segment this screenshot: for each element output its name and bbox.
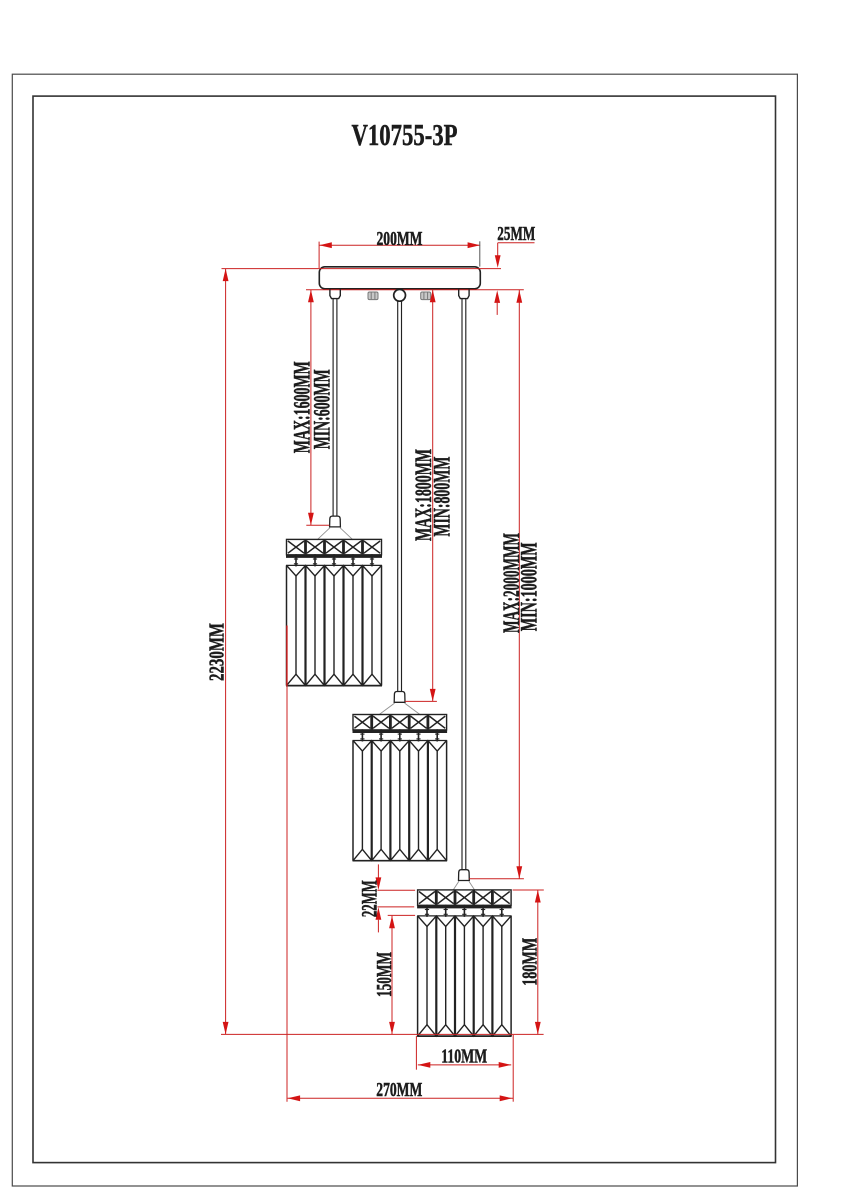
svg-text:25MM: 25MM: [497, 223, 535, 245]
svg-text:MIN:600MM: MIN:600MM: [310, 369, 335, 449]
svg-text:180MM: 180MM: [518, 938, 542, 986]
svg-text:2230MM: 2230MM: [205, 623, 229, 681]
svg-text:V10755-3P: V10755-3P: [352, 117, 458, 152]
svg-text:22MM: 22MM: [357, 880, 382, 917]
svg-text:MIN:800MM: MIN:800MM: [429, 456, 454, 536]
svg-text:110MM: 110MM: [441, 1046, 487, 1068]
svg-text:MIN:1000MM: MIN:1000MM: [516, 542, 541, 631]
svg-text:200MM: 200MM: [377, 228, 423, 250]
svg-text:150MM: 150MM: [372, 952, 396, 997]
svg-text:270MM: 270MM: [376, 1079, 422, 1101]
